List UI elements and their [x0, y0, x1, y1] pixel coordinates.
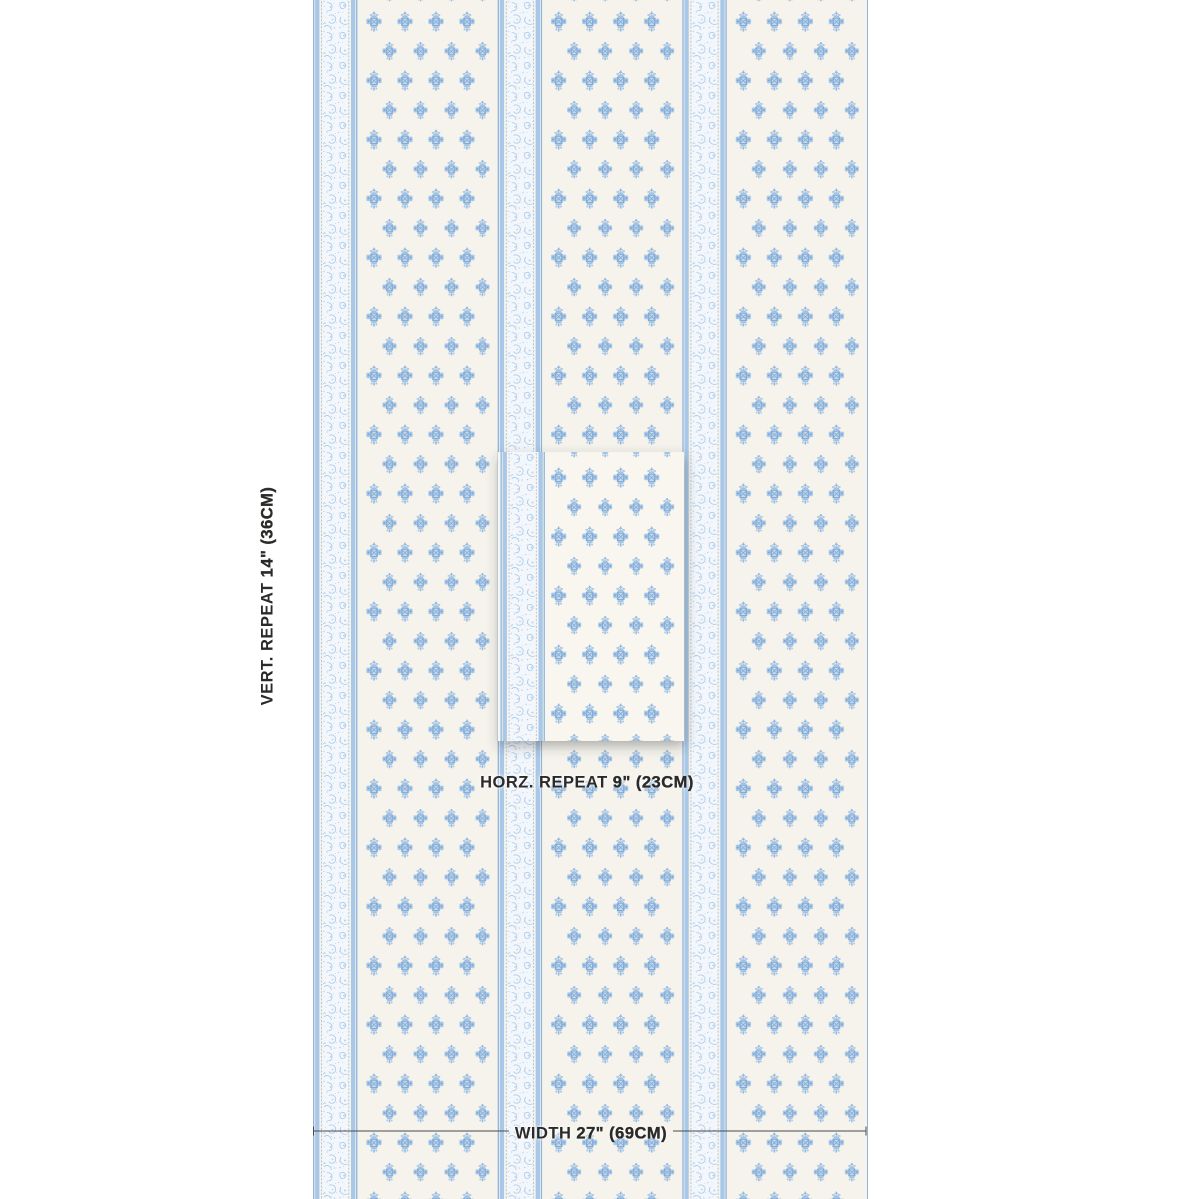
vertical-repeat-text: VERT. REPEAT [259, 582, 278, 705]
horizontal-repeat-text: HORZ. REPEAT [480, 774, 608, 793]
width-label: WIDTH 27" (69CM) [515, 1125, 667, 1144]
wallpaper-artwork [0, 0, 1200, 1199]
paisley-stripe-edge [867, 0, 911, 1199]
width-text: WIDTH [515, 1125, 572, 1144]
horizontal-repeat-value: 9" (23CM) [613, 774, 694, 793]
width-value: 27" (69CM) [576, 1125, 667, 1144]
vertical-repeat-label: VERT. REPEAT 14" (36CM) [259, 487, 278, 706]
swatch-motif-field [498, 452, 684, 741]
horizontal-repeat-label: HORZ. REPEAT 9" (23CM) [480, 774, 694, 793]
product-dimension-diagram: VERT. REPEAT 14" (36CM) HORZ. REPEAT 9" … [0, 0, 1200, 1199]
vertical-repeat-value: 14" (36CM) [259, 487, 278, 578]
